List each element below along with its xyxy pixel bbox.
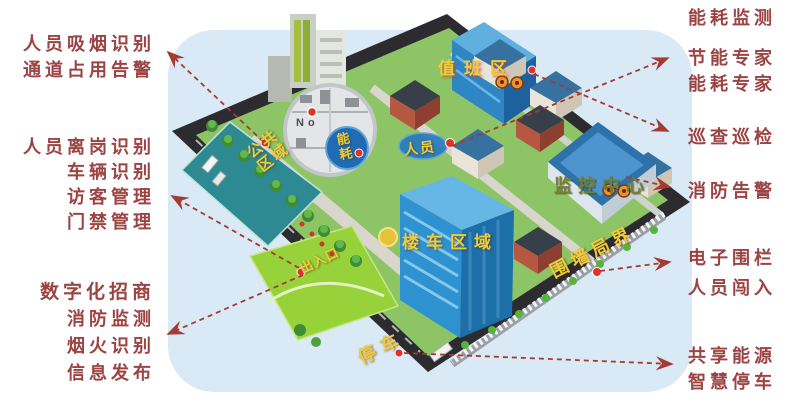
right-annotation-group-inspection: 巡查巡检 <box>688 124 776 150</box>
annotation-line: 消防告警 <box>688 178 776 204</box>
right-annotation-group-shared-energy: 共享能源 智慧停车 <box>688 343 776 395</box>
map-label-monitoring-center: 监控中心 <box>554 172 650 198</box>
yellow-dot-marker <box>379 228 397 246</box>
map-label-building-vehicle-area: 楼车区域 <box>402 228 498 253</box>
annotation-line: 巡查巡检 <box>688 124 776 150</box>
smart-park-infographic: 人员吸烟识别 通道占用告警 人员离岗识别 车辆识别 访客管理 门禁管理 数字化招… <box>0 0 808 405</box>
annotation-line: 访客管理 <box>23 185 155 210</box>
magnifier-text: No <box>296 117 319 129</box>
annotation-line: 电子围栏 <box>688 243 776 273</box>
annotation-line: 信息发布 <box>40 360 155 387</box>
red-dot-marker <box>308 108 317 117</box>
annotation-line: 人员闯入 <box>688 273 776 303</box>
right-annotation-group-energy-expert: 节能专家 能耗专家 <box>688 45 776 97</box>
right-annotation-group-fence: 电子围栏 人员闯入 <box>688 243 776 303</box>
annotation-line: 能耗专家 <box>688 71 776 97</box>
left-annotation-group-smoking: 人员吸烟识别 通道占用告警 <box>23 31 155 83</box>
annotation-line: 智慧停车 <box>688 369 776 395</box>
annotation-line: 通道占用告警 <box>23 57 155 83</box>
annotation-line: 能耗监测 <box>688 5 776 31</box>
annotation-line: 人员离岗识别 <box>23 135 155 160</box>
annotation-line: 人员吸烟识别 <box>23 31 155 57</box>
annotation-line: 节能专家 <box>688 45 776 71</box>
map-label-duty-area: 值班区 <box>438 54 516 79</box>
annotation-line: 共享能源 <box>688 343 776 369</box>
annotation-line: 烟火识别 <box>40 333 155 360</box>
left-annotation-group-access: 人员离岗识别 车辆识别 访客管理 门禁管理 <box>23 135 155 235</box>
annotation-line: 消防监测 <box>40 306 155 333</box>
annotation-line: 车辆识别 <box>23 160 155 185</box>
right-annotation-group-energy-monitor: 能耗监测 <box>688 5 776 31</box>
left-annotation-group-digital: 数字化招商 消防监测 烟火识别 信息发布 <box>40 279 155 387</box>
annotation-line: 门禁管理 <box>23 210 155 235</box>
map-label-personnel: 人员 <box>403 136 437 159</box>
right-annotation-group-fire-alarm: 消防告警 <box>688 178 776 204</box>
annotation-line: 数字化招商 <box>40 279 155 306</box>
